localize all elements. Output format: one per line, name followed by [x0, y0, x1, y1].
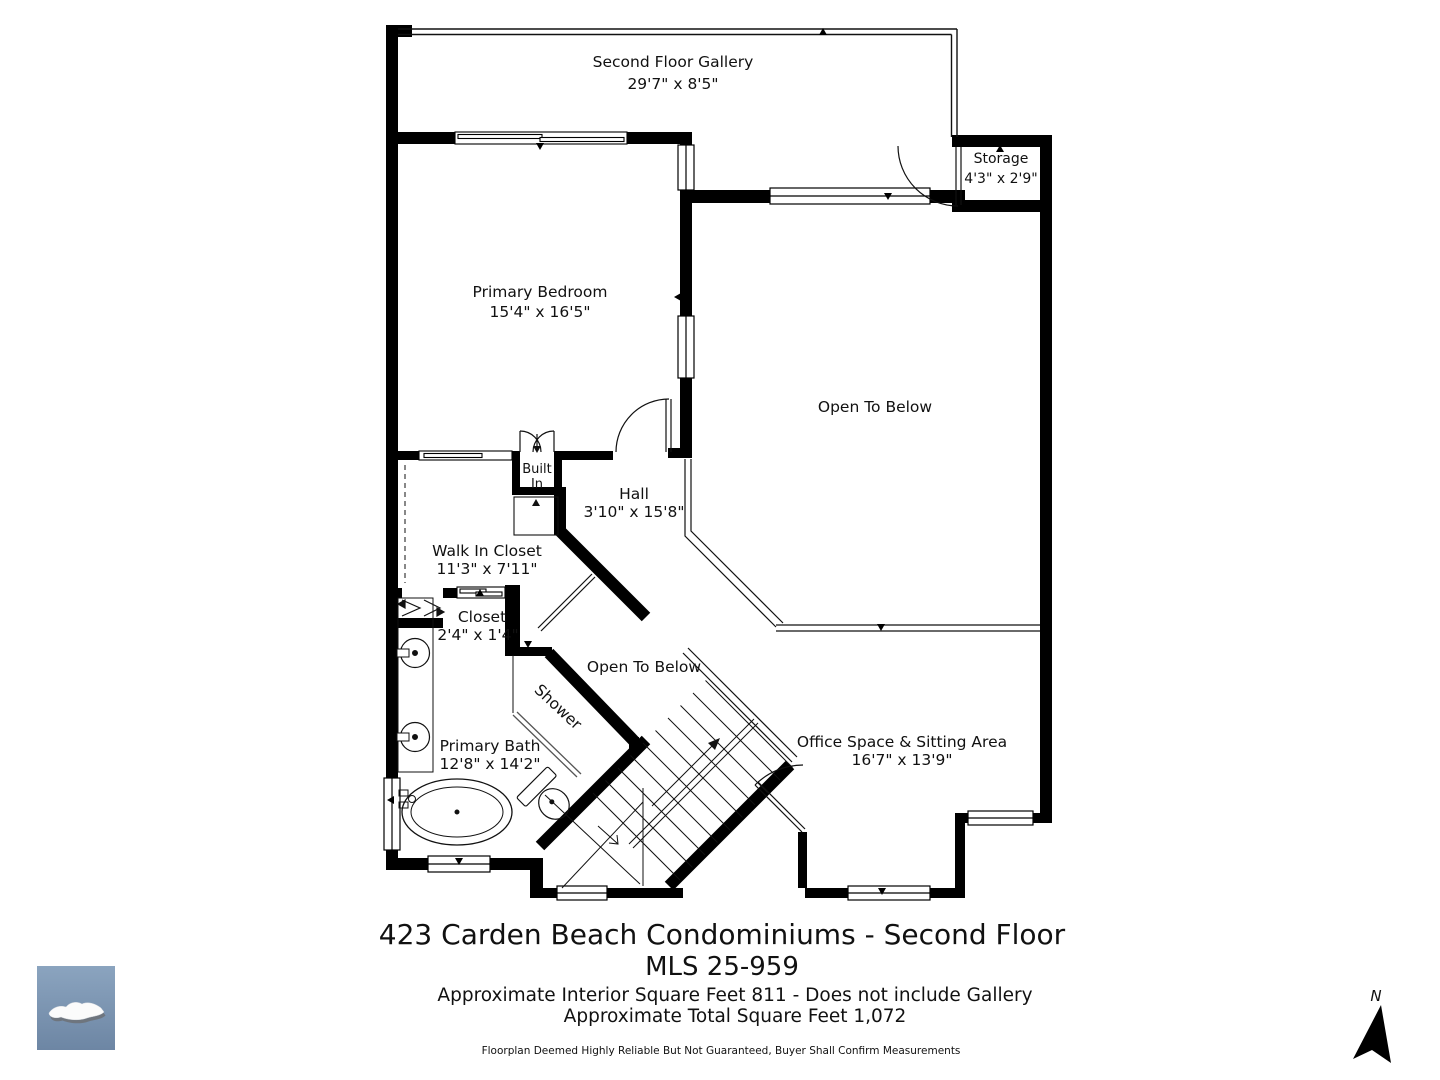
- floorplan-svg: Second Floor Gallery 29'7" x 8'5" Storag…: [0, 0, 1440, 1080]
- mls-number: MLS 25-959: [645, 952, 799, 982]
- plan-title: 423 Carden Beach Condominiums - Second F…: [379, 918, 1066, 951]
- label-closet-dims: 2'4" x 1'4": [437, 626, 518, 644]
- interior-sqft: Approximate Interior Square Feet 811 - D…: [437, 985, 1032, 1006]
- island-logo: [37, 966, 115, 1050]
- label-closet-name: Closet: [458, 608, 506, 626]
- label-hall-name: Hall: [619, 485, 649, 503]
- label-hall-dims: 3'10" x 15'8": [584, 503, 685, 521]
- label-storage-dims: 4'3" x 2'9": [964, 171, 1037, 187]
- label-storage-name: Storage: [974, 151, 1029, 167]
- label-primary-bath-dims: 12'8" x 14'2": [440, 755, 541, 773]
- label-primary-bath-name: Primary Bath: [440, 737, 541, 755]
- disclaimer-text: Floorplan Deemed Highly Reliable But Not…: [482, 1045, 961, 1057]
- floorplan-page: Second Floor Gallery 29'7" x 8'5" Storag…: [0, 0, 1440, 1080]
- label-open-to-below-right: Open To Below: [818, 398, 933, 416]
- label-office-dims: 16'7" x 13'9": [852, 751, 953, 769]
- label-open-to-below-center: Open To Below: [587, 658, 702, 676]
- label-built-in-1: Built: [522, 462, 551, 477]
- label-primary-bedroom-dims: 15'4" x 16'5": [490, 303, 591, 321]
- label-built-in-2: In: [531, 477, 543, 492]
- label-office-name: Office Space & Sitting Area: [797, 733, 1007, 751]
- total-sqft: Approximate Total Square Feet 1,072: [564, 1006, 907, 1027]
- label-gallery-name: Second Floor Gallery: [593, 53, 754, 71]
- label-walk-in-closet-name: Walk In Closet: [432, 542, 542, 560]
- north-label: N: [1370, 987, 1381, 1005]
- label-gallery-dims: 29'7" x 8'5": [627, 75, 718, 93]
- label-primary-bedroom-name: Primary Bedroom: [473, 283, 608, 301]
- label-walk-in-closet-dims: 11'3" x 7'11": [437, 560, 538, 578]
